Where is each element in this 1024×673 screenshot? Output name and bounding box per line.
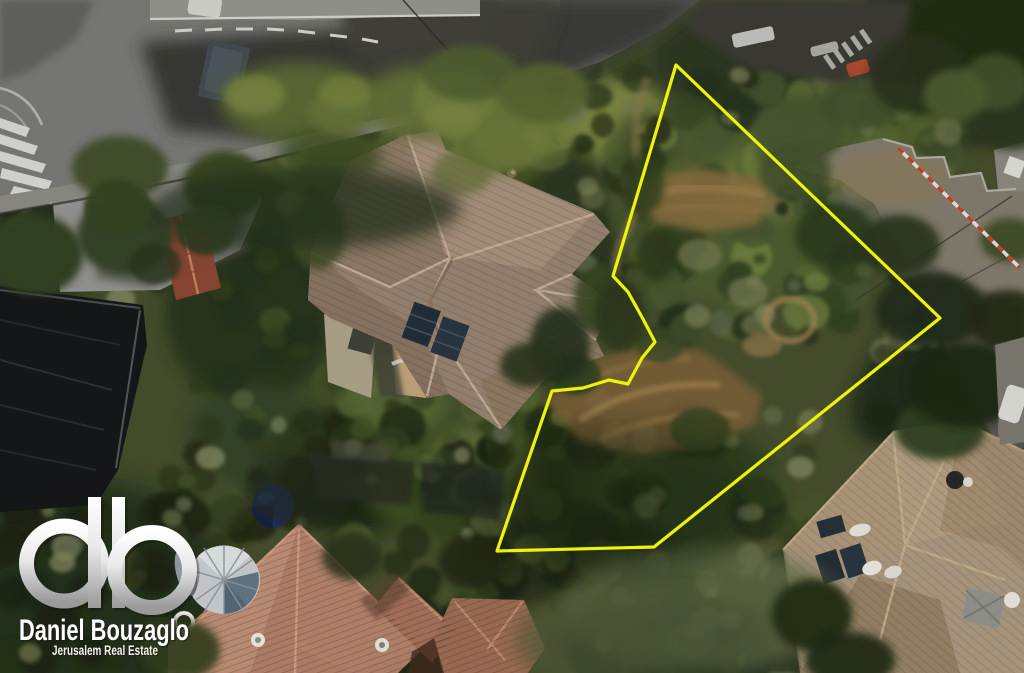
- svg-text:Jerusalem Real Estate: Jerusalem Real Estate: [52, 643, 158, 658]
